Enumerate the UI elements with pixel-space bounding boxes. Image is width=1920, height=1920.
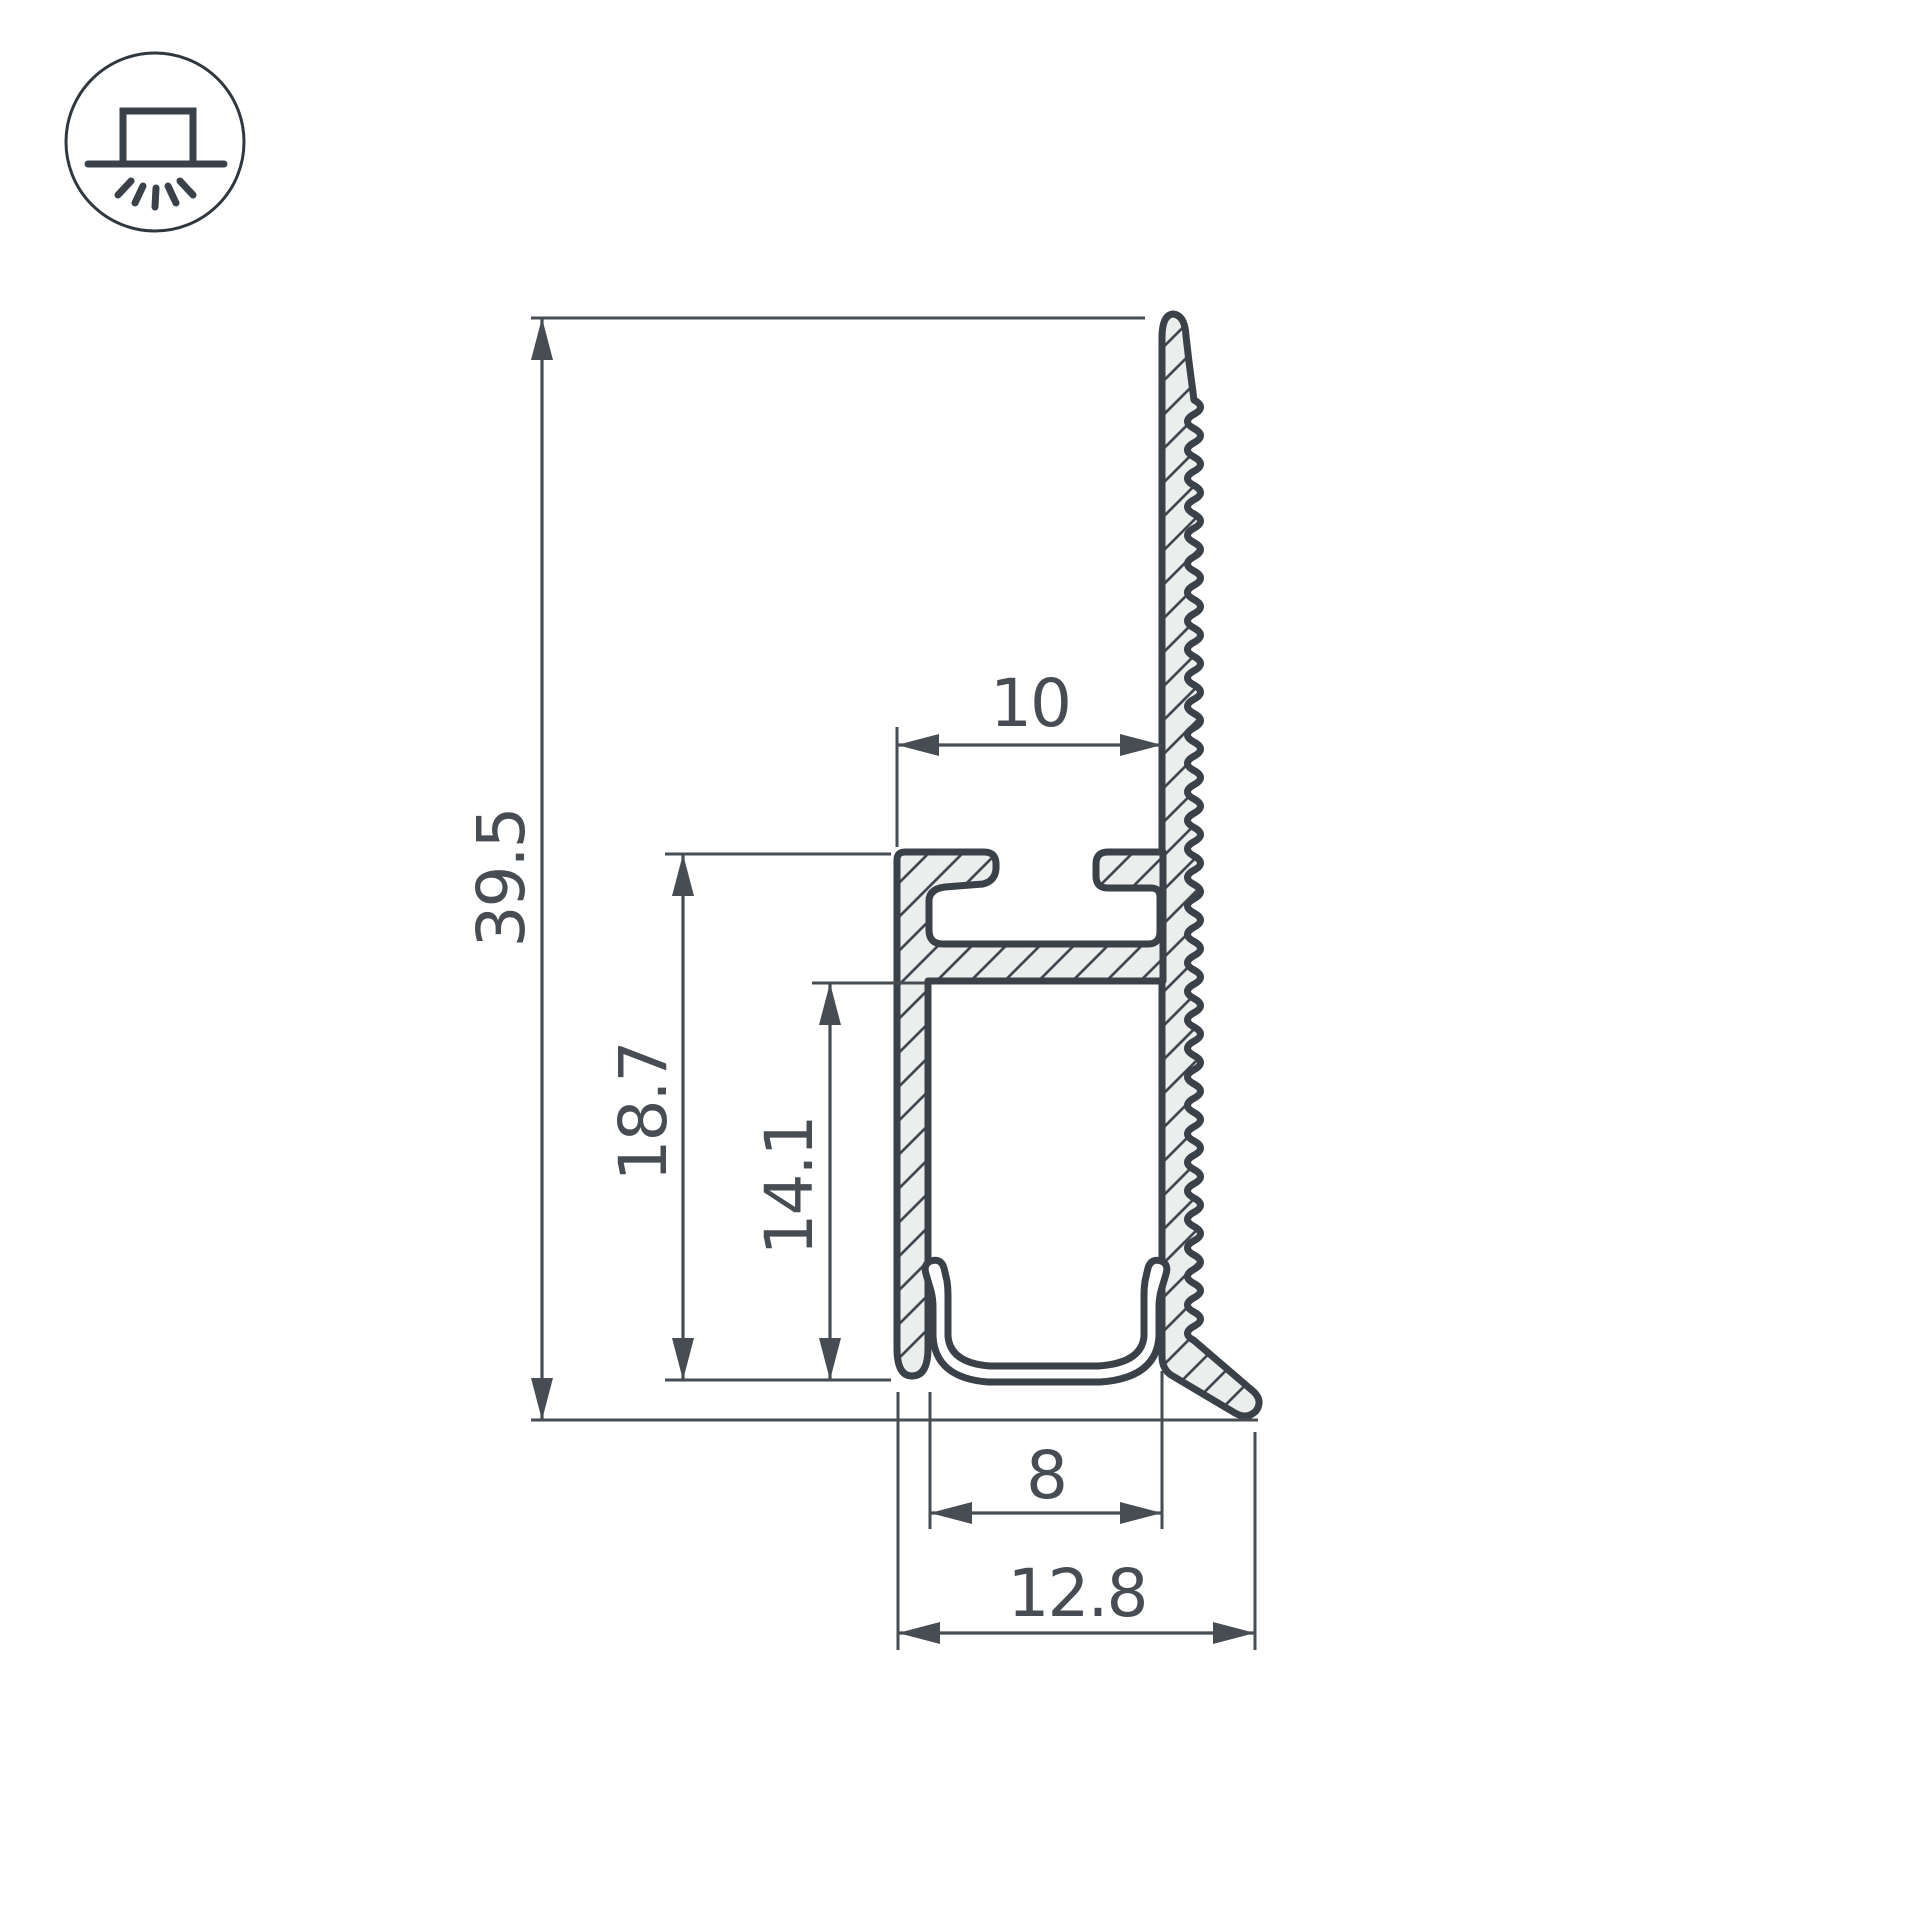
dimension-label: 10: [990, 665, 1070, 742]
dimension-label: 39.5: [463, 809, 540, 948]
dimension-label: 12.8: [1008, 1555, 1147, 1632]
profile-technical-drawing: 39.5 18.7 14.1 10: [0, 0, 1920, 1920]
dimension-label: 18.7: [605, 1043, 682, 1182]
dimension-label: 14.1: [751, 1117, 828, 1256]
dimension-label: 8: [1026, 1437, 1066, 1514]
